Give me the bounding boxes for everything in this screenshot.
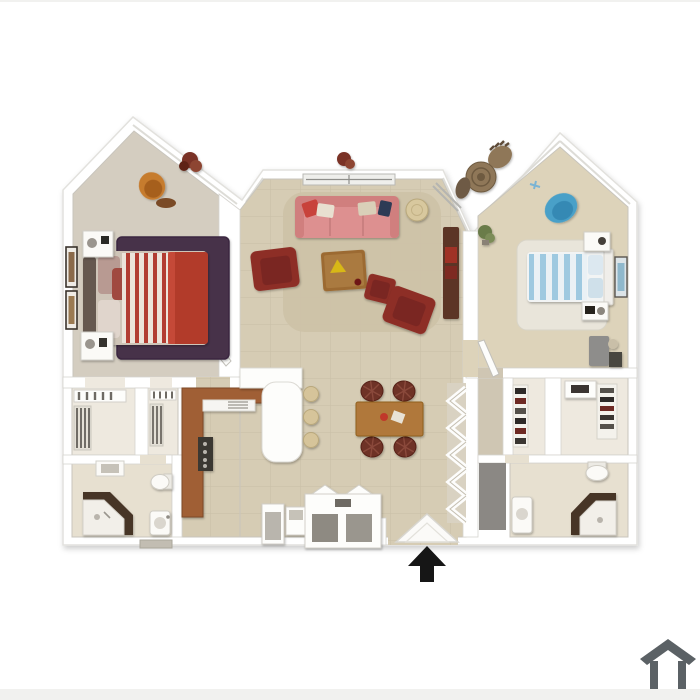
sofa <box>295 196 399 238</box>
pillow <box>588 278 603 298</box>
pillow <box>316 203 335 218</box>
closet-cabinet <box>565 381 596 398</box>
console-table <box>443 227 459 319</box>
wall-bath1-right <box>172 455 182 537</box>
nightstand-top <box>83 231 113 257</box>
headboard <box>604 249 613 305</box>
nightstand-top-right <box>584 232 610 251</box>
closet-shelf <box>74 390 126 402</box>
top-edge-strip <box>0 0 700 2</box>
wall-closet-divider-left <box>135 388 148 458</box>
barstools <box>304 387 319 448</box>
bed-left <box>83 251 208 345</box>
pantry-shelves <box>447 383 466 523</box>
toilet-right <box>586 462 608 481</box>
centerpiece <box>380 413 388 421</box>
vanity-right <box>512 497 532 533</box>
shoe-rack <box>597 384 617 439</box>
toilet-left <box>151 474 172 490</box>
striped-duvet <box>529 254 587 300</box>
dining-table <box>356 402 423 436</box>
hall-right-floor <box>478 378 505 455</box>
pillow <box>588 255 603 275</box>
floor-plan-canvas <box>0 0 700 700</box>
shoe-shelves <box>513 385 528 447</box>
wall-closet-left-right-side <box>503 378 513 455</box>
armchair-red <box>250 246 301 291</box>
photo-frame <box>609 352 622 367</box>
floor-plan-image <box>0 0 700 700</box>
lamp <box>85 339 95 349</box>
nightstand-bottom-right <box>582 302 608 320</box>
striped-duvet <box>122 253 172 343</box>
wall-closet-bath-right <box>478 455 637 463</box>
bath-window-inset <box>140 540 172 548</box>
nightstand-bottom <box>81 332 113 360</box>
bed-right <box>527 249 613 305</box>
lamp <box>87 238 97 248</box>
small-desk <box>156 198 176 208</box>
bottom-edge-strip <box>0 689 700 700</box>
wall-closet-divider-right <box>545 378 561 455</box>
wall-art-right <box>615 257 627 297</box>
gray-door-slab <box>479 463 506 530</box>
pillow <box>357 201 376 216</box>
shower-drain <box>94 514 100 520</box>
shower-drain <box>597 517 603 523</box>
lamp <box>608 339 618 349</box>
coffee-table <box>321 250 368 292</box>
pedestal-sink-left <box>150 511 170 535</box>
round-side-table <box>406 199 428 221</box>
headboard <box>83 257 96 339</box>
